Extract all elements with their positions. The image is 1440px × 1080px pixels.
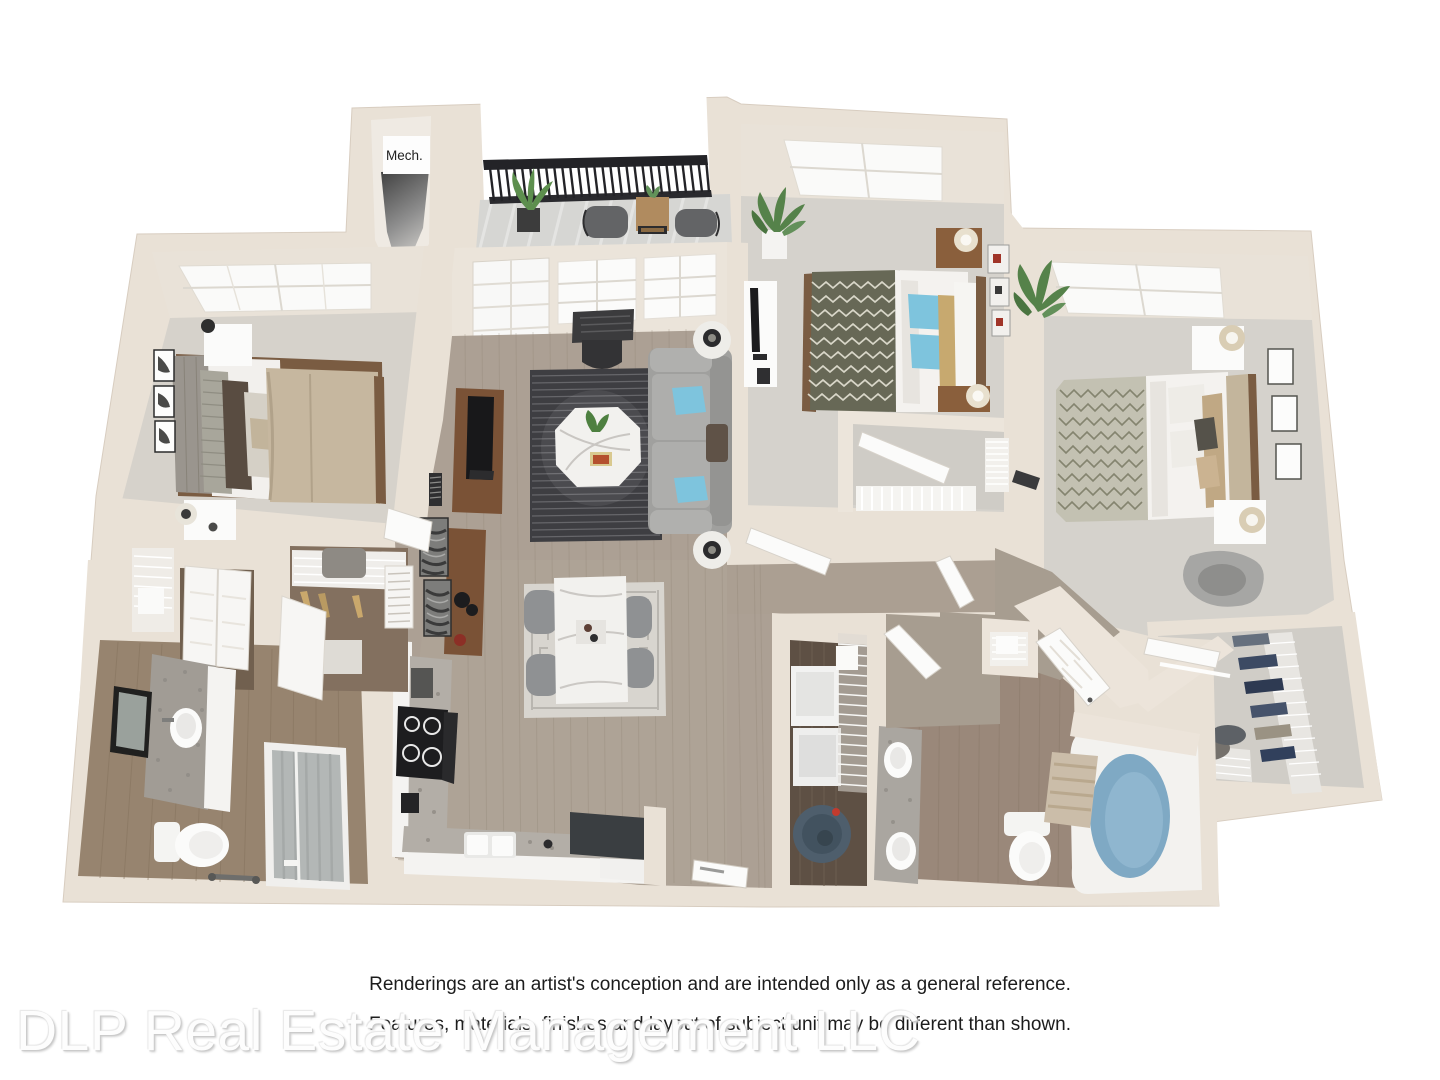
svg-text:Mech.: Mech. bbox=[386, 148, 423, 163]
